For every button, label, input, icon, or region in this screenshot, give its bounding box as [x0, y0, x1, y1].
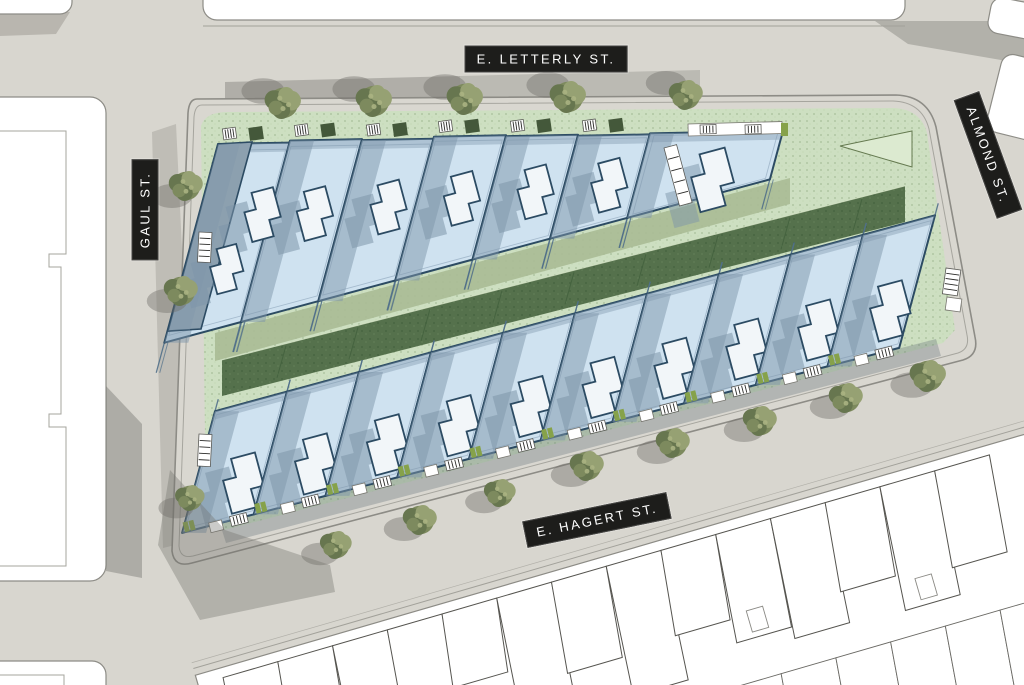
tree-canopy	[468, 98, 473, 103]
tree-canopy	[565, 100, 570, 105]
stair-hatch	[294, 124, 308, 137]
tree-canopy	[582, 459, 587, 464]
tree-canopy	[188, 500, 192, 504]
tree-canopy	[689, 94, 694, 99]
front-planter	[608, 118, 624, 133]
stair-hatch	[745, 125, 761, 134]
tree-canopy	[498, 496, 502, 500]
tree-canopy	[176, 284, 181, 289]
stair-hatch	[222, 127, 236, 140]
entry-stoop	[945, 297, 962, 312]
stair-hatch-box	[294, 124, 308, 137]
tree-canopy	[185, 492, 189, 496]
tree-canopy	[571, 96, 576, 101]
stair-hatch	[197, 434, 212, 467]
front-planter	[248, 126, 264, 141]
tree-canopy	[841, 391, 846, 396]
tree-canopy	[844, 401, 849, 406]
stair-hatch	[942, 268, 960, 296]
tree-canopy	[192, 497, 196, 501]
tree-canopy	[184, 189, 189, 194]
tree-canopy	[339, 544, 343, 548]
stair-tread	[200, 440, 211, 441]
tree-canopy	[280, 106, 285, 111]
planter	[781, 123, 788, 136]
tree-canopy	[495, 487, 499, 491]
neighbor-block-nw	[0, 0, 72, 14]
tree-canopy	[423, 519, 428, 524]
stair-hatch-box	[197, 434, 212, 467]
tree-canopy	[181, 179, 186, 184]
stair-hatch-box	[366, 123, 380, 136]
tree-canopy	[671, 446, 676, 451]
tree-canopy	[415, 513, 420, 518]
site-plan-canvas	[0, 0, 1024, 685]
front-planter	[392, 122, 408, 137]
stair-hatch	[510, 119, 524, 132]
tree-canopy	[462, 102, 467, 107]
tree-canopy	[925, 379, 930, 384]
tree-canopy	[676, 442, 681, 447]
tree-canopy	[755, 414, 760, 419]
stair-hatch-box	[700, 125, 716, 134]
tree-canopy	[377, 100, 382, 105]
stair-hatch	[438, 120, 452, 133]
tree-canopy	[459, 92, 464, 97]
tree-canopy	[368, 94, 373, 99]
stair-tread	[199, 447, 210, 448]
stair-hatch	[582, 119, 596, 132]
tree-canopy	[371, 104, 376, 109]
stair-hatch-box	[510, 119, 524, 132]
stair-tread	[200, 238, 211, 239]
stair-hatch	[366, 123, 380, 136]
tree-canopy	[418, 523, 423, 528]
stair-hatch-box	[582, 119, 596, 132]
tree-canopy	[585, 469, 590, 474]
stair-hatch-box	[942, 268, 960, 296]
stair-hatch-box	[745, 125, 761, 134]
front-planter	[536, 118, 552, 133]
tree-canopy	[922, 369, 927, 374]
tree-canopy	[286, 102, 291, 107]
tree-canopy	[758, 424, 763, 429]
tree-canopy	[763, 420, 768, 425]
neighbor-block-north	[203, 0, 905, 20]
tree-canopy	[668, 436, 673, 441]
stair-hatch	[700, 125, 716, 134]
stair-hatch	[197, 232, 212, 263]
front-planter	[464, 119, 480, 134]
front-planter	[320, 123, 336, 138]
tree-canopy	[931, 375, 936, 380]
site-plan: E. LETTERLY ST. ALMOND ST. E. HAGERT ST.…	[0, 0, 1024, 685]
tree-canopy	[331, 539, 335, 543]
stair-hatch-box	[222, 127, 236, 140]
tree-canopy	[590, 465, 595, 470]
street-label-letterly: E. LETTERLY ST.	[465, 46, 628, 73]
tree-canopy	[179, 294, 184, 299]
tree-canopy	[849, 397, 854, 402]
tree-canopy	[189, 185, 194, 190]
tree-canopy	[681, 88, 686, 93]
stair-tread	[199, 453, 210, 454]
stair-tread	[199, 250, 210, 251]
tree-canopy	[334, 548, 338, 552]
tree-canopy	[277, 96, 282, 101]
street-label-gaul: GAUL ST.	[132, 160, 159, 261]
neighbor-block-sw	[0, 661, 106, 685]
stair-hatch-box	[197, 232, 212, 263]
tree-canopy	[562, 90, 567, 95]
tree-canopy	[684, 98, 689, 103]
neighbor-block-west	[0, 97, 106, 581]
tree-canopy	[503, 492, 507, 496]
stair-tread	[199, 256, 210, 257]
tree-canopy	[184, 290, 189, 295]
stair-tread	[199, 244, 210, 245]
stair-tread	[199, 460, 210, 461]
stair-hatch-box	[438, 120, 452, 133]
